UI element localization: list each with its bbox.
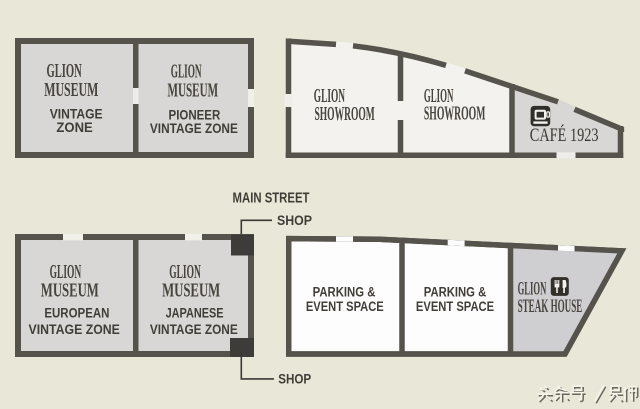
svg-text:MUSEUM: MUSEUM [41,280,99,302]
svg-text:SHOP: SHOP [277,213,312,228]
svg-text:VINTAGE ZONE: VINTAGE ZONE [28,322,119,337]
svg-text:VINTAGE ZONE: VINTAGE ZONE [150,121,238,136]
svg-text:VINTAGE ZONE: VINTAGE ZONE [150,322,238,337]
svg-text:PARKING &: PARKING & [313,285,376,300]
svg-text:SHOWROOM: SHOWROOM [424,103,486,125]
svg-text:ZONE: ZONE [56,120,92,135]
svg-text:EVENT SPACE: EVENT SPACE [416,299,494,314]
svg-text:EUROPEAN: EUROPEAN [44,306,109,321]
svg-text:SHOP: SHOP [278,372,311,387]
svg-text:MAIN STREET: MAIN STREET [233,190,310,206]
svg-text:MUSEUM: MUSEUM [168,80,219,102]
svg-text:CAFÉ 1923: CAFÉ 1923 [530,124,599,146]
svg-text:PARKING &: PARKING & [424,285,487,300]
svg-text:MUSEUM: MUSEUM [162,280,220,302]
svg-text:STEAK HOUSE: STEAK HOUSE [518,296,583,317]
svg-text:MUSEUM: MUSEUM [44,79,98,101]
svg-text:JAPANESE: JAPANESE [166,306,224,321]
svg-text:EVENT SPACE: EVENT SPACE [306,299,384,314]
svg-text:SHOWROOM: SHOWROOM [315,103,375,125]
